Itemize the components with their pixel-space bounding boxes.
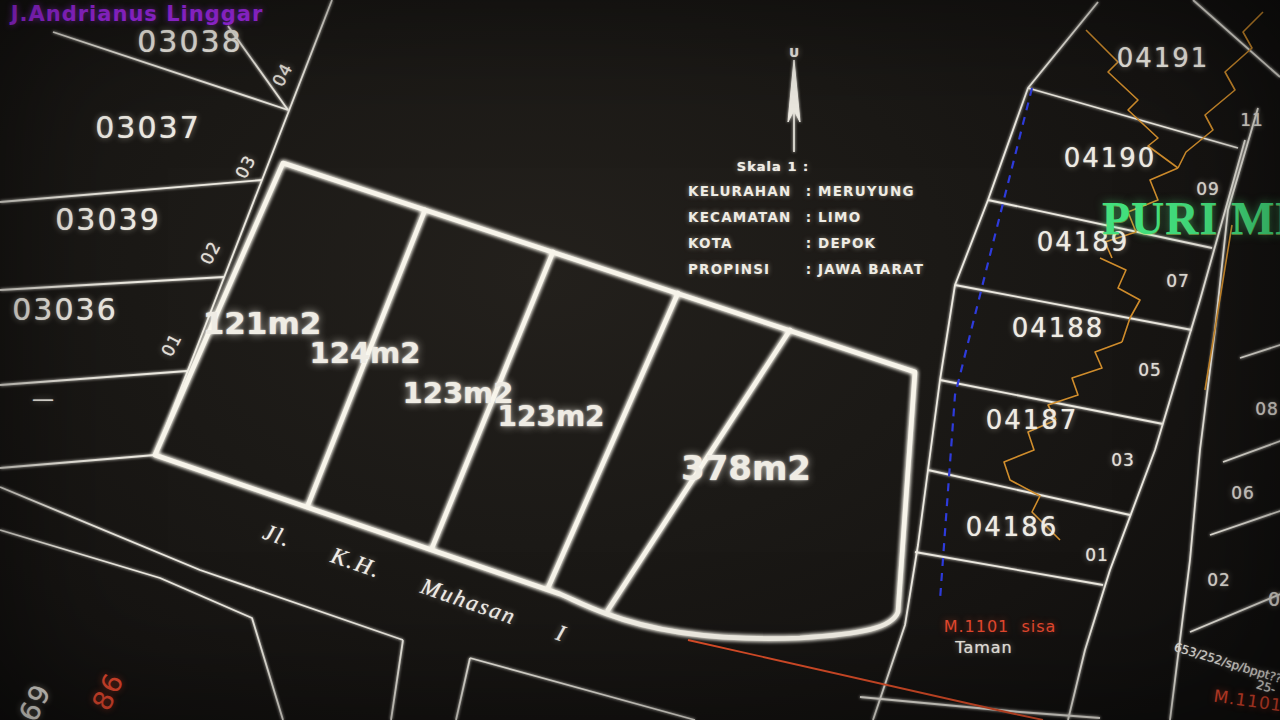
parcel-id-04188: 04188 [1012, 315, 1105, 341]
parcel-tag-01: 01 [1085, 547, 1109, 564]
east-tag-08: 08 [1255, 401, 1279, 418]
parcel-id-04191: 04191 [1117, 45, 1210, 71]
owner-name-overlay: J.Andrianus Linggar [11, 4, 264, 25]
parcel-tag-05: 05 [1138, 362, 1162, 379]
plot-area-121m2: 121m2 [203, 308, 322, 339]
estate-name-puri-meruyung: PURI MERU [1102, 196, 1280, 242]
admin-row-kecamatan: KECAMATAN : LIMO [688, 209, 924, 225]
north-label: U [789, 47, 799, 59]
cadastral-map-photo: J.Andrianus Linggar 03038 04 03037 03 03… [0, 0, 1280, 720]
admin-row-propinsi: PROPINSI : JAWA BARAT [688, 261, 924, 277]
cadastral-drawing-canvas [0, 0, 1280, 720]
plot-area-378m2: 378m2 [681, 451, 811, 485]
admin-info-block: KELURAHAN : MERUYUNG KECAMATAN : LIMO KO… [688, 183, 924, 287]
north-arrow-icon [788, 60, 800, 152]
note-taman: Taman [955, 640, 1012, 656]
east-tag-02: 02 [1207, 572, 1231, 589]
parcel-tag-03: 03 [1111, 452, 1135, 469]
parcel-id-03037: 03037 [95, 113, 200, 143]
parcel-tag-07: 07 [1166, 273, 1190, 290]
admin-row-kelurahan: KELURAHAN : MERUYUNG [688, 183, 924, 199]
parcel-id-03036: 03036 [12, 295, 117, 325]
admin-row-kota: KOTA : DEPOK [688, 235, 924, 251]
parcel-id-04187: 04187 [986, 407, 1079, 433]
parcel-id-04186: 04186 [966, 514, 1059, 540]
east-tag-04-clipped: 04 [1268, 590, 1280, 609]
parcel-id-04190: 04190 [1064, 145, 1157, 171]
plot-area-123m2-b: 123m2 [497, 403, 604, 431]
parcel-tag-11: 11 [1240, 112, 1264, 129]
scale-label: Skala 1 : [737, 160, 809, 173]
thin-parcel-lines [0, 0, 1280, 720]
east-tag-06: 06 [1231, 485, 1255, 502]
unlabeled-parcel-dash: — [32, 388, 54, 410]
parcel-id-03039: 03039 [55, 205, 160, 235]
note-m1101-sisa: M.1101 sisa [944, 619, 1057, 635]
parcel-id-03038: 03038 [137, 27, 242, 57]
plot-area-124m2: 124m2 [310, 339, 421, 368]
